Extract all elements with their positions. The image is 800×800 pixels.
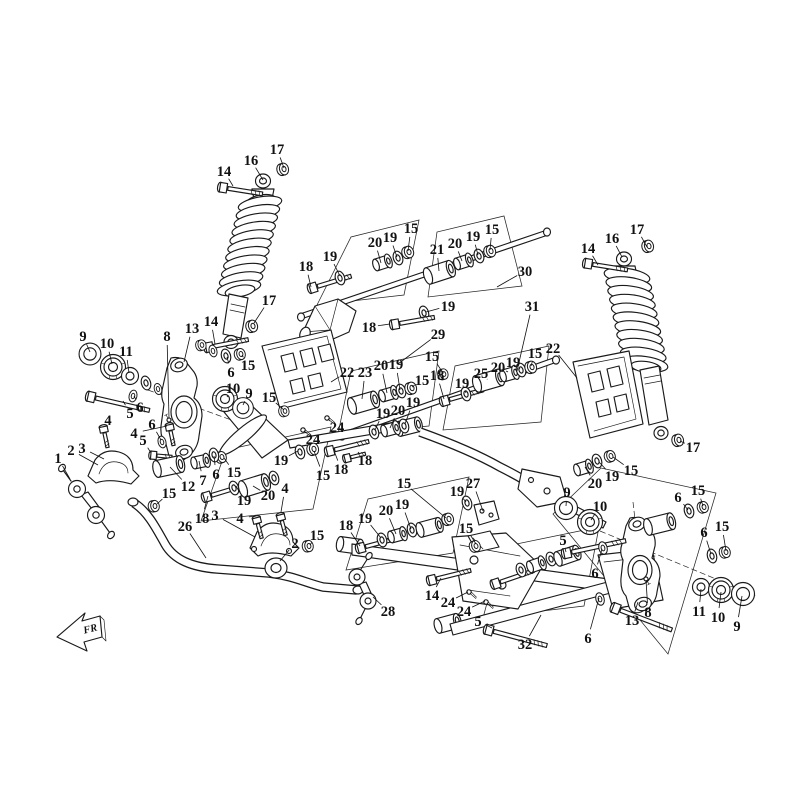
callout-19: 19	[506, 355, 521, 371]
bolt-part	[482, 624, 548, 651]
part-number-label: 15	[241, 358, 256, 374]
callout-18: 18	[362, 320, 390, 336]
part-number-label: 5	[474, 614, 481, 630]
callout-25: 25	[474, 366, 489, 382]
part-number-label: 30	[518, 264, 533, 280]
part-number-label: 6	[700, 525, 707, 541]
callout-18: 18	[333, 448, 348, 478]
part-number-label: 19	[450, 484, 465, 500]
part-number-label: 15	[316, 468, 331, 484]
part-number-label: 14	[425, 588, 440, 604]
part-number-label: 21	[430, 242, 445, 258]
nut-part	[245, 319, 259, 334]
part-number-label: 4	[104, 413, 111, 429]
callout-17: 17	[680, 440, 700, 456]
washer-part	[220, 348, 233, 364]
callout-19: 19	[426, 299, 455, 315]
part-number-label: 6	[148, 417, 155, 433]
part-number-label: 10	[711, 610, 726, 626]
part-number-label: 11	[692, 604, 706, 620]
part-number-label: 4	[130, 426, 137, 442]
part-number-label: 8	[163, 329, 170, 345]
sway-bar	[128, 498, 363, 594]
part-number-label: 6	[136, 400, 143, 416]
part-number-label: 20	[588, 476, 603, 492]
callout-6: 6	[674, 490, 688, 510]
part-number-label: 4	[236, 511, 243, 527]
part-number-label: 20	[368, 235, 383, 251]
callout-15: 15	[412, 373, 429, 389]
part-number-label: 2	[291, 536, 298, 552]
part-number-label: 3	[211, 508, 218, 524]
nut-part	[696, 500, 710, 514]
part-number-label: 18	[339, 518, 354, 534]
callout-18: 18	[430, 368, 445, 399]
part-number-label: 18	[430, 368, 445, 384]
part-number-label: 8	[644, 605, 651, 621]
callout-15: 15	[715, 519, 730, 551]
tube-part	[415, 517, 445, 539]
part-number-label: 18	[299, 259, 314, 275]
callout-15: 15	[241, 355, 256, 374]
callout-5: 5	[139, 433, 151, 453]
nut-part	[641, 239, 655, 254]
part-number-label: 18	[358, 453, 373, 469]
part-number-label: 19	[466, 229, 481, 245]
part-number-label: 6	[584, 631, 591, 647]
part-number-label: 20	[491, 360, 506, 376]
callout-19: 19	[455, 376, 470, 393]
callout-19: 19	[274, 451, 298, 469]
callout-6: 6	[700, 525, 711, 554]
part-number-label: 15	[262, 390, 277, 406]
callout-16: 16	[244, 153, 263, 180]
dust-cap-part	[79, 343, 101, 365]
callout-32: 32	[518, 615, 541, 653]
washer-part	[140, 375, 153, 391]
part-number-label: 16	[605, 231, 620, 247]
part-number-label: 9	[245, 386, 252, 402]
part-number-label: 19	[406, 395, 421, 411]
part-number-label: 5	[126, 406, 133, 422]
part-number-label: 20	[379, 503, 394, 519]
part-number-label: 18	[362, 320, 377, 336]
callout-6: 6	[148, 417, 161, 440]
part-number-label: 24	[330, 420, 345, 436]
part-number-label: 19	[441, 299, 456, 315]
callout-15: 15	[310, 528, 325, 545]
callout-6: 6	[134, 396, 144, 416]
part-number-label: 18	[195, 511, 210, 527]
part-number-label: 15	[162, 486, 177, 502]
part-number-label: 24	[457, 604, 472, 620]
part-number-label: 15	[415, 373, 430, 389]
part-number-label: 6	[674, 490, 681, 506]
callout-24: 24	[304, 431, 320, 448]
part-number-label: 19	[323, 249, 338, 265]
callout-18: 18	[358, 452, 373, 469]
knuckle-left	[161, 356, 202, 462]
front-direction-indicator: FR	[57, 613, 106, 651]
bushing-part	[386, 526, 408, 545]
part-number-label: 16	[244, 153, 259, 169]
part-number-label: 4	[281, 481, 288, 497]
part-number-label: 15	[227, 465, 242, 481]
part-number-label: 24	[306, 432, 321, 448]
part-number-label: 20	[448, 236, 463, 252]
part-number-label: 7	[199, 473, 206, 489]
part-number-label: 3	[78, 441, 85, 457]
callout-4: 4	[281, 481, 289, 512]
part-number-label: 1	[54, 451, 61, 467]
part-number-label: 27	[466, 476, 481, 492]
part-number-label: 19	[506, 355, 521, 371]
part-number-label: 11	[119, 344, 133, 360]
part-number-label: 17	[262, 293, 277, 309]
dust-cap-part	[732, 583, 755, 606]
callout-15: 15	[224, 458, 241, 481]
part-number-label: 15	[404, 221, 419, 237]
part-number-label: 20	[374, 358, 389, 374]
part-number-label: 17	[686, 440, 701, 456]
callout-15: 15	[157, 486, 176, 504]
callout-6: 6	[227, 357, 235, 381]
part-number-label: 9	[733, 619, 740, 635]
part-number-label: 15	[528, 346, 543, 362]
part-number-label: 19	[237, 493, 252, 509]
washer-part	[706, 548, 719, 564]
callout-14: 14	[204, 314, 219, 344]
part-number-label: 13	[185, 321, 200, 337]
coil-spring-left	[216, 193, 283, 298]
part-number-label: 14	[204, 314, 219, 330]
nut-part	[603, 449, 617, 463]
part-number-label: 10	[593, 499, 608, 515]
exploded-diagram-canvas: FR 1716141819171413891011156109564456231…	[0, 0, 800, 800]
callout-10: 10	[226, 381, 241, 397]
part-number-label: 19	[389, 357, 404, 373]
bushing-part	[572, 458, 595, 477]
part-number-label: 15	[459, 521, 474, 537]
part-number-label: 19	[395, 497, 410, 513]
part-number-label: 29	[431, 327, 446, 343]
sleeve-part	[422, 259, 458, 285]
part-number-label: 5	[139, 433, 146, 449]
callout-4: 4	[104, 413, 112, 429]
seal-part	[122, 368, 139, 385]
part-number-label: 17	[630, 222, 645, 238]
part-number-label: 6	[591, 566, 598, 582]
part-number-label: 20	[391, 403, 406, 419]
part-number-label: 9	[79, 329, 86, 345]
nut-part	[718, 545, 732, 559]
part-number-label: 26	[178, 519, 193, 535]
bushing-part	[371, 253, 394, 273]
part-number-label: 28	[381, 604, 396, 620]
part-number-label: 6	[212, 467, 219, 483]
part-number-label: 19	[274, 453, 289, 469]
part-number-label: 19	[358, 511, 373, 527]
part-number-label: 18	[334, 462, 349, 478]
part-number-label: 23	[358, 365, 373, 381]
callout-19: 19	[450, 484, 466, 502]
part-number-label: 12	[181, 479, 196, 495]
part-number-label: 9	[563, 485, 570, 501]
part-number-label: 6	[227, 365, 234, 381]
part-number-label: 15	[485, 222, 500, 238]
callout-20: 20	[374, 358, 389, 393]
part-number-label: 10	[100, 336, 115, 352]
callout-28: 28	[373, 597, 395, 620]
callout-17: 17	[254, 293, 276, 323]
callout-20: 20	[379, 503, 396, 534]
part-number-label: 19	[455, 376, 470, 392]
callout-3: 3	[211, 508, 255, 537]
part-number-label: 32	[518, 637, 533, 653]
parts-diagram-page: FR 1716141819171413891011156109564456231…	[0, 0, 800, 800]
part-number-label: 5	[559, 533, 566, 549]
part-number-label: 15	[624, 463, 639, 479]
part-number-label: 15	[310, 528, 325, 544]
washer-part	[333, 270, 346, 286]
spacer-part	[642, 512, 677, 536]
part-number-label: 15	[425, 349, 440, 365]
part-number-label: 15	[397, 476, 412, 492]
part-number-label: 2	[67, 443, 74, 459]
callout-19: 19	[358, 511, 381, 538]
part-number-label: 15	[691, 483, 706, 499]
part-number-label: 14	[581, 241, 596, 257]
bearing-part	[709, 578, 734, 603]
part-number-label: 20	[261, 488, 276, 504]
part-number-label: 31	[525, 299, 540, 315]
part-number-label: 19	[376, 406, 391, 422]
part-number-label: 24	[441, 595, 456, 611]
part-number-label: 13	[625, 613, 640, 629]
part-number-label: 22	[546, 341, 561, 357]
part-number-label: 15	[715, 519, 730, 535]
bracket-27	[474, 501, 499, 525]
part-number-label: 17	[270, 142, 285, 158]
part-number-label: 14	[217, 164, 232, 180]
callout-6: 6	[584, 598, 599, 647]
sway-bar-clamp-left	[88, 451, 139, 484]
part-number-label: 19	[605, 469, 620, 485]
part-number-label: 19	[383, 230, 398, 246]
callout-24: 24	[328, 419, 344, 436]
part-number-label: 10	[226, 381, 241, 397]
nut-part	[671, 433, 685, 448]
callout-30: 30	[497, 264, 532, 287]
part-number-label: 22	[340, 365, 355, 381]
part-number-label: 25	[474, 366, 489, 382]
